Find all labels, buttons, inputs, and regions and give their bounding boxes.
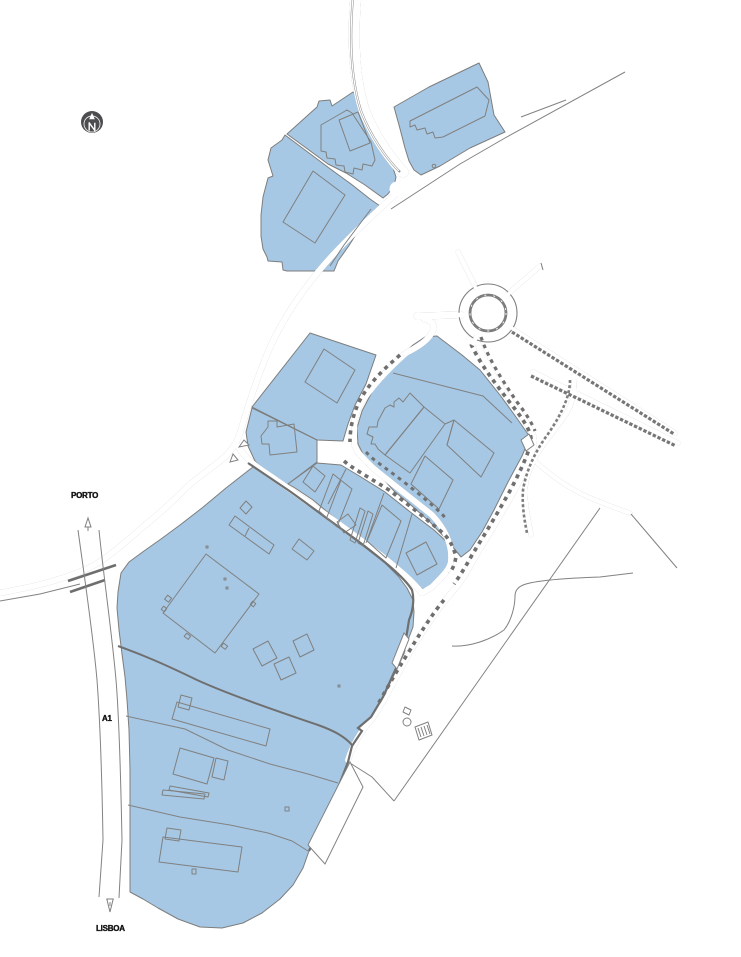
svg-text:A1: A1 bbox=[102, 714, 113, 723]
svg-text:LISBOA: LISBOA bbox=[96, 924, 125, 933]
svg-text:PORTO: PORTO bbox=[71, 491, 98, 500]
